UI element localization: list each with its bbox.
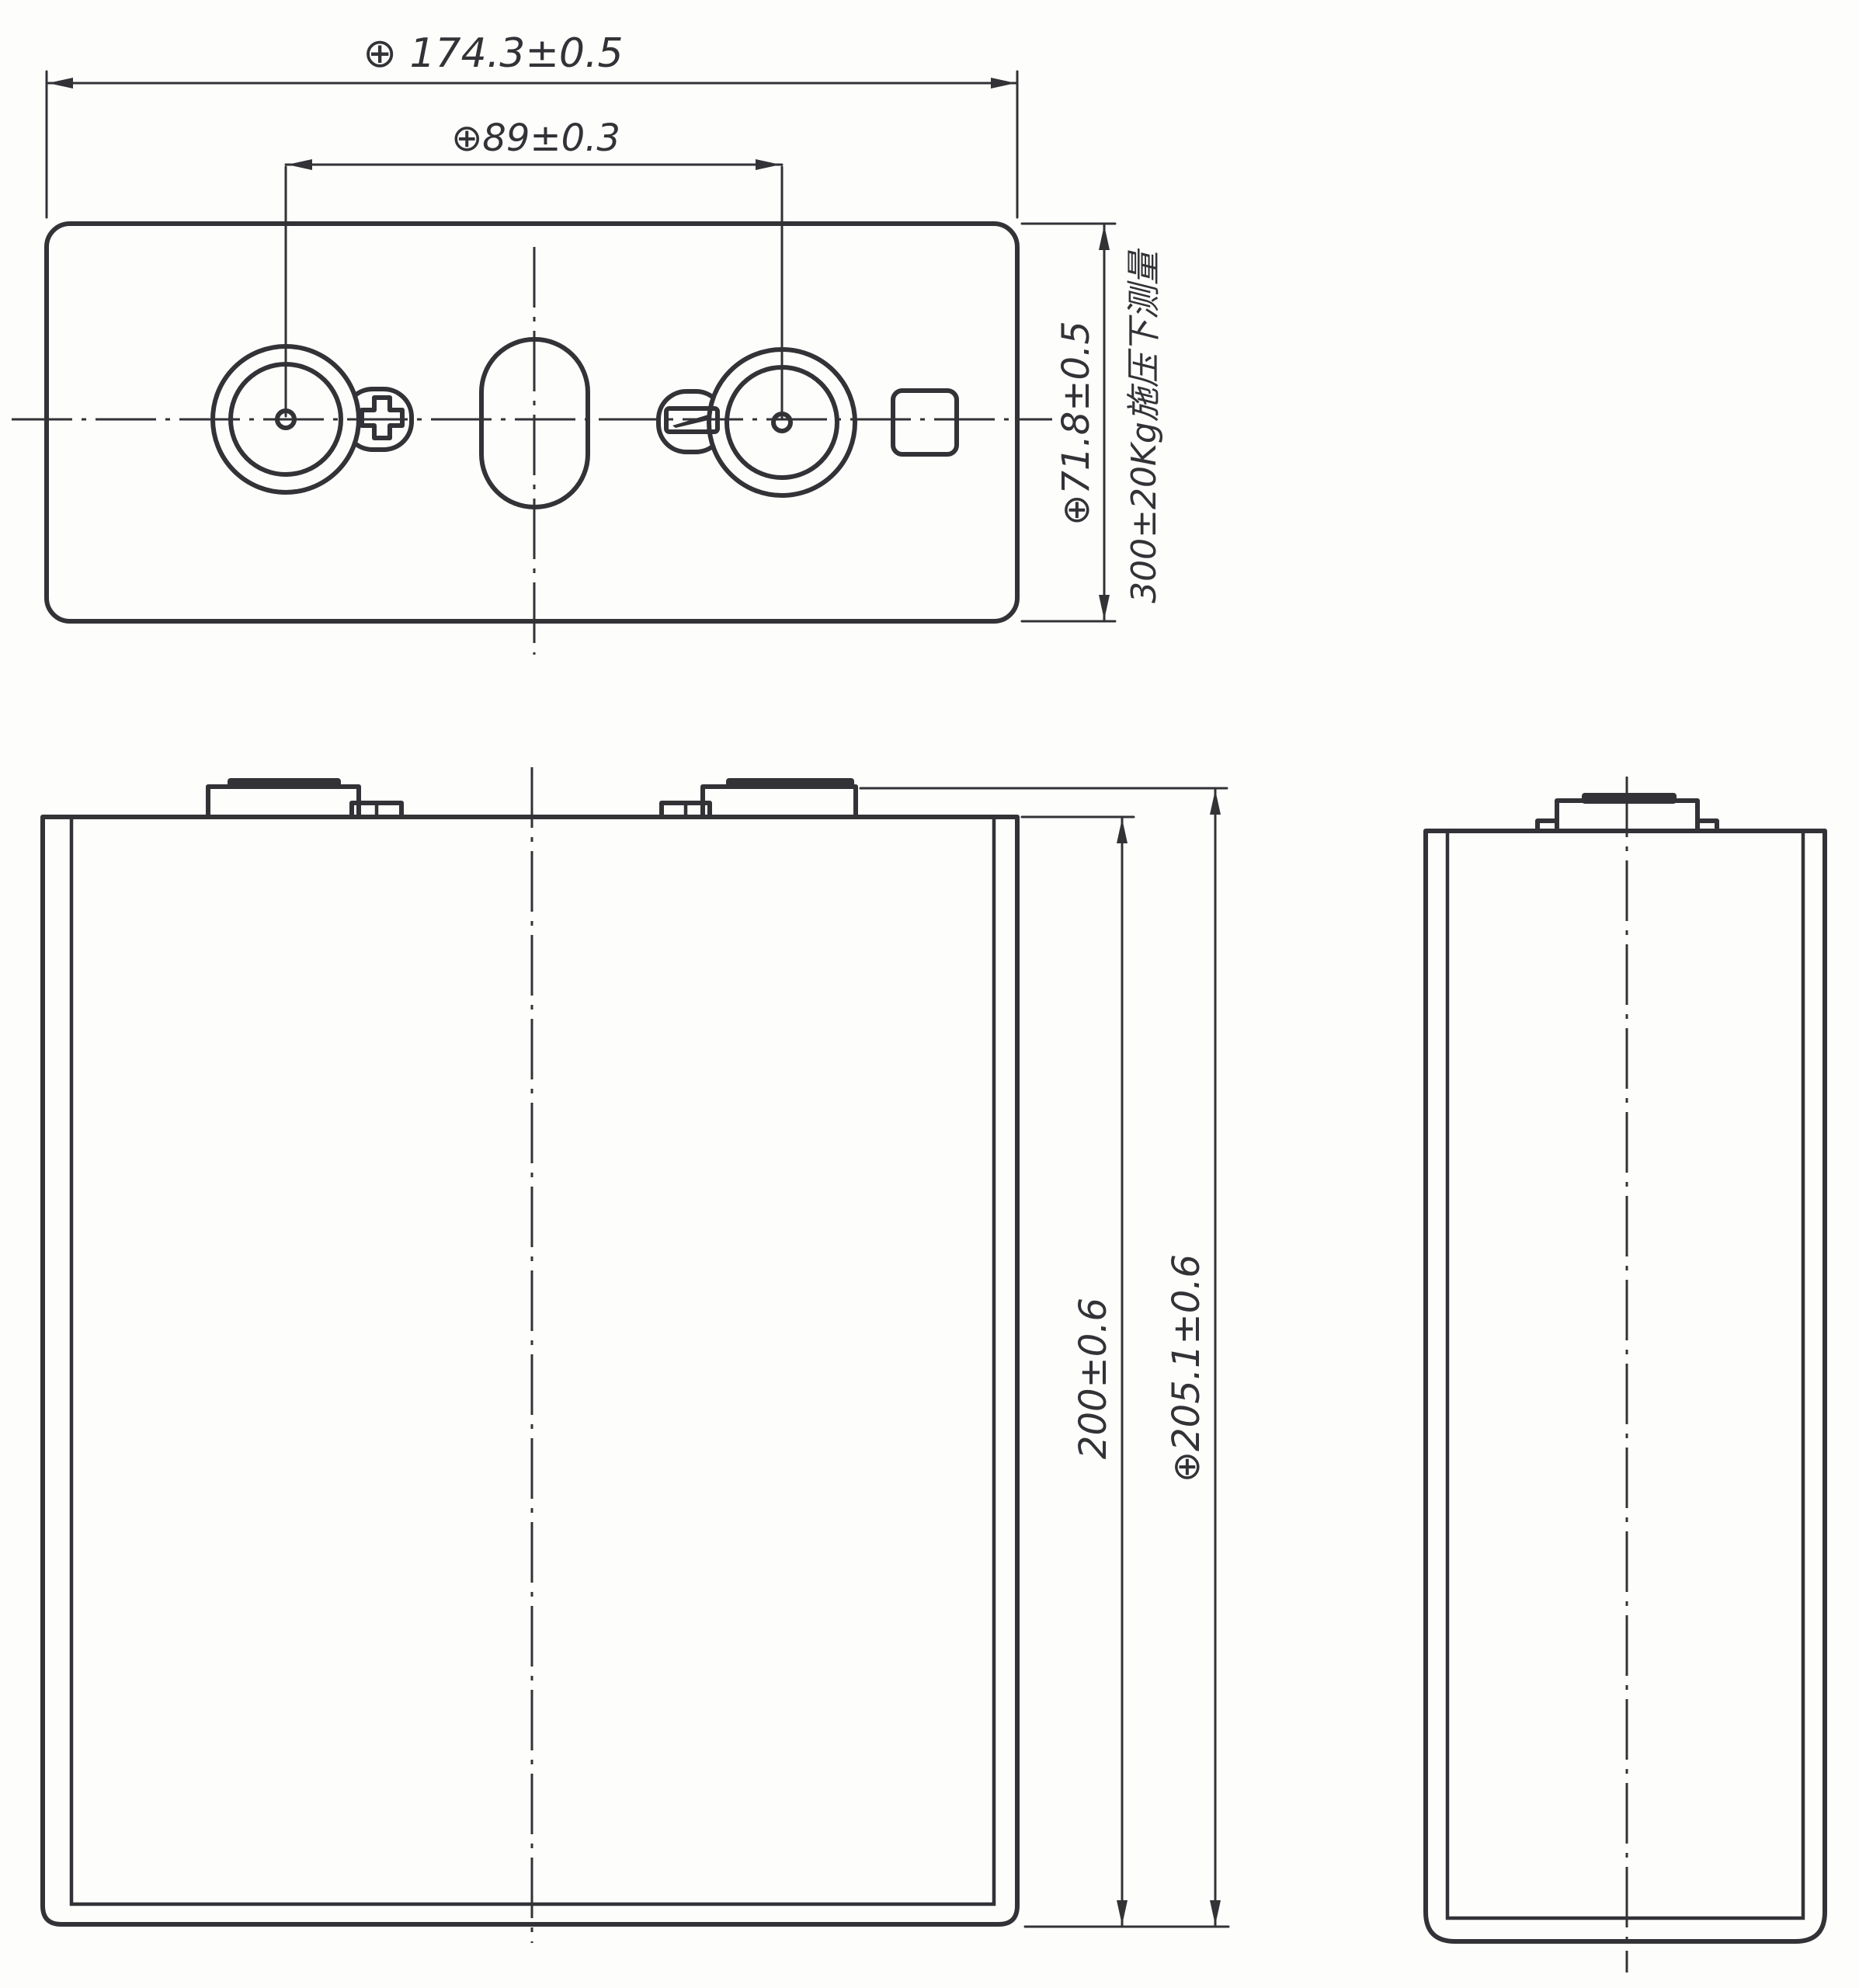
side-view-case-outline xyxy=(1426,831,1825,1941)
dim-width-label: ⊕ 174.3±0.5 xyxy=(363,30,623,77)
dim-pitch: ⊕89±0.3 xyxy=(286,116,782,170)
dim-thickness-label: ⊕71.8±0.5 xyxy=(1055,321,1098,526)
code-square xyxy=(893,391,957,454)
front-view-case-outline xyxy=(43,817,1017,1924)
dim-thickness: ⊕71.8±0.5 300±20Kg施压下测量 xyxy=(1022,224,1164,621)
front-view: 200±0.6 ⊕205.1±0.6 xyxy=(43,767,1228,1943)
dim-height-body: 200±0.6 xyxy=(1072,817,1128,1927)
drawing-sheet: ⊕ 174.3±0.5 ⊕89±0.3 ⊕71.8±0.5 300±20Kg施压… xyxy=(0,0,1859,1988)
front-negative-terminal xyxy=(662,778,856,817)
dim-height-total-label: ⊕205.1±0.6 xyxy=(1165,1254,1208,1482)
top-view: ⊕ 174.3±0.5 ⊕89±0.3 ⊕71.8±0.5 300±20Kg施压… xyxy=(12,30,1164,655)
side-view-inner-lines xyxy=(1447,831,1803,1918)
dim-pitch-label: ⊕89±0.3 xyxy=(451,116,620,160)
front-positive-terminal xyxy=(208,778,401,817)
side-view xyxy=(1426,777,1825,1972)
plus-icon xyxy=(362,398,402,438)
battery-cell-drawing: ⊕ 174.3±0.5 ⊕89±0.3 ⊕71.8±0.5 300±20Kg施压… xyxy=(0,0,1859,1988)
dim-height-total: ⊕205.1±0.6 xyxy=(1165,788,1221,1927)
thickness-measure-note: 300±20Kg施压下测量 xyxy=(1124,248,1164,603)
dim-height-body-label: 200±0.6 xyxy=(1072,1298,1115,1459)
